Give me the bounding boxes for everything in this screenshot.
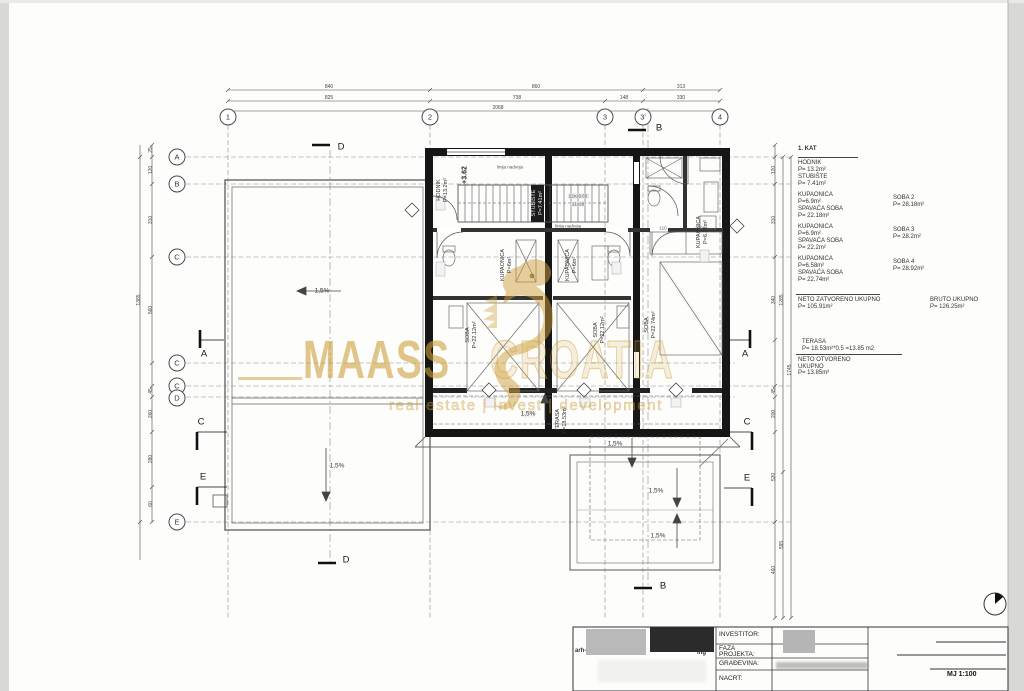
north-indicator-icon (984, 593, 1006, 615)
slope-label: 1,5% (330, 463, 345, 470)
section-letter-a-right: A (742, 349, 748, 360)
lintel-line-label-2: linija nadvoja (555, 224, 581, 229)
dim-right-mid: 595 (779, 541, 785, 549)
room-label-stubiste: STUBIŠTEP=7.41m² (531, 190, 545, 217)
room-label-kupaonica-3: KUPAONICAP=6.18m² (696, 216, 710, 248)
grid-bubble-3p: 3' (635, 109, 652, 126)
legend-bruto: BRUTO UKUPNOP= 126.25m² (930, 297, 978, 310)
dim-right: 200 (771, 410, 777, 418)
dim-top-total: 2068 (492, 105, 503, 111)
legend-rule (798, 157, 858, 158)
titleblock-projekta-label: PROJEKTA: (719, 652, 755, 659)
legend-item: KUPAONICAP=6.9m² (798, 224, 833, 237)
legend-item: KUPAONICAP=6.58m² (798, 256, 833, 269)
dim-right: 460 (771, 566, 777, 574)
dim-left: 560 (148, 306, 154, 314)
section-letter-c-right: C (744, 417, 751, 428)
scale-label: MJ 1:100 (947, 671, 977, 678)
legend-room-right: SOBA 4P= 28.92m² (893, 259, 924, 272)
legend-room-right: SOBA 3P= 28.2m² (893, 227, 921, 240)
dim-top2: 738 (513, 95, 521, 101)
section-letter-a-left: A (201, 349, 207, 360)
dim-top2: 148 (620, 95, 628, 101)
legend-terasa: TERASAP= 18.53m²*0.5 =13.85 m2 (802, 339, 874, 352)
dim-left: 25 (148, 147, 154, 153)
room-label-terasa: TERASAP=18.53m² (555, 406, 569, 433)
slope-label: 1,5% (649, 488, 664, 495)
titleblock-nacrt-label: NACRT: (719, 676, 742, 683)
legend-item: KUPAONICAP=6.9m² (798, 192, 833, 205)
closet-width-210: 210 (695, 226, 703, 231)
dim-left: 45 (148, 388, 154, 394)
stamp-logo-redacted (586, 629, 646, 655)
level-mark: +3.62 (462, 166, 469, 184)
room-label-soba-3: SOBAP=22.74m² (644, 311, 658, 338)
grid-bubble-2: 2 (422, 109, 439, 126)
section-letter-e-left: E (200, 472, 206, 483)
grid-bubble-4: 4 (712, 109, 729, 126)
legend-stubiste: STUBIŠTEP= 7.41m² (798, 174, 827, 187)
grid-bubble-D: D (169, 390, 186, 407)
watermark-rule (238, 377, 302, 380)
dim-top2: 825 (325, 95, 333, 101)
room-label-kupaonica-1: KUPAONICAP=6m² (500, 249, 514, 281)
section-letter-b-bottom: B (660, 581, 666, 592)
legend-rule (796, 354, 902, 355)
dim-left: 120 (148, 166, 154, 174)
stairs-count: 22x16.65 (568, 194, 589, 199)
watermark-brand-bold: MAASS (303, 329, 451, 391)
dim-left: 280 (148, 455, 154, 463)
section-letter-b-top: B (656, 123, 662, 134)
titleblock-gradjevina-label: GRAĐEVINA: (719, 661, 759, 668)
dim-top2: 330 (677, 95, 685, 101)
slope-label: 1,5% (315, 288, 330, 295)
dim-right-total: 1745 (787, 364, 793, 375)
stamp-text-left: arh- (575, 648, 586, 654)
dim-right: 340 (771, 296, 777, 304)
dim-top: 840 (325, 84, 333, 90)
legend-neto-otvoreno: NETO OTVORENO UKUPNO P= 13.85m² (798, 357, 851, 377)
legend-item: SPAVAĆA SOBAP= 22.18m² (798, 206, 843, 219)
stamp-text-right: ing (697, 650, 706, 656)
dim-right: 520 (771, 473, 777, 481)
titleblock-value-redacted (783, 630, 815, 653)
stamp-faint (598, 660, 706, 682)
grid-bubble-E: E (169, 514, 186, 531)
closet-width-110: 110 (659, 226, 666, 231)
slope-label: 1,5% (521, 411, 536, 418)
legend-room-right: SOBA 2P= 28.18m² (893, 195, 924, 208)
grid-bubble-3: 3 (597, 109, 614, 126)
grid-bubble-C: C (169, 249, 186, 266)
section-letter-d-bottom: D (343, 555, 350, 566)
grid-bubble-B: B (169, 176, 186, 193)
section-letter-d-top: D (338, 142, 345, 153)
legend-hodnik: HODNIKP= 13.2m² (798, 160, 826, 173)
stamp-logo-dark (650, 627, 714, 652)
room-label-kupaonica-2: KUPAONICAP=6m² (565, 249, 579, 281)
dim-left: 310 (148, 216, 154, 224)
legend-item: SPAVAĆA SOBAP= 22.2m² (798, 238, 843, 251)
dim-left: 60 (148, 501, 154, 507)
slope-label: 1,5% (651, 533, 666, 540)
grid-bubble-C2: C (169, 355, 186, 372)
slope-label: 1,5% (608, 441, 623, 448)
grid-bubble-A: A (169, 149, 186, 166)
room-label-soba-2: SOBAP=22.12m² (593, 316, 607, 343)
legend-item: SPAVAĆA SOBAP= 22.74m² (798, 270, 843, 283)
lintel-line-label: linija nadvoja (497, 165, 523, 170)
titleblock-investitor-label: INVESTITOR: (719, 632, 760, 639)
dim-left: 260 (148, 410, 154, 418)
legend-neto-zatvoreno: NETO ZATVORENO UKUPNOP= 105.91m² (798, 297, 880, 310)
dim-right-mid: 1285 (779, 294, 785, 305)
legend-rule (796, 294, 880, 295)
stairs-count-2: 21x28 (571, 202, 585, 207)
section-letter-c-left: C (198, 417, 205, 428)
grid-bubble-1: 1 (220, 109, 237, 126)
room-label-hodnik: HODNIKP=13.2m² (436, 178, 450, 202)
dim-top: 313 (677, 84, 685, 90)
dim-right: 45 (771, 388, 777, 394)
drawing-sheet: { "watermark":{"brand_bold":"MAASS","bra… (0, 0, 1024, 691)
section-letter-e-right: E (744, 473, 750, 484)
dim-right: 310 (771, 216, 777, 224)
dim-top: 860 (532, 84, 540, 90)
dim-left-total: 1385 (136, 294, 142, 305)
room-label-soba-1: SOBAP=22.12m² (465, 321, 479, 348)
legend-floor-title: 1. KAT (798, 146, 817, 153)
terrace (415, 396, 740, 570)
dim-right: 120 (771, 166, 777, 174)
titleblock-gradjevina-redacted (776, 662, 868, 669)
walls (425, 148, 730, 437)
